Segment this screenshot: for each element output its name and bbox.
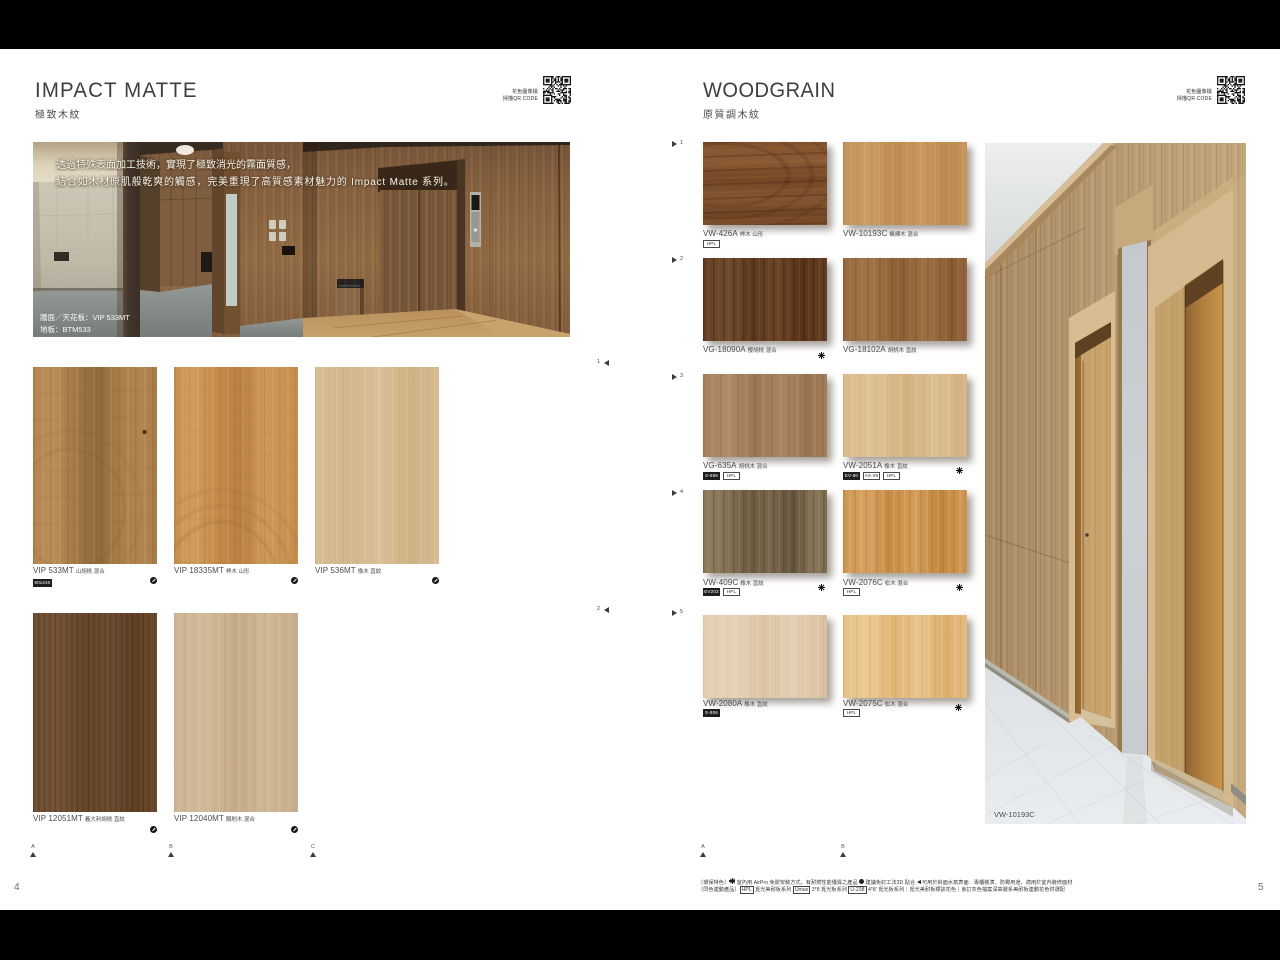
svg-text:VW-10193C: VW-10193C — [994, 810, 1035, 819]
